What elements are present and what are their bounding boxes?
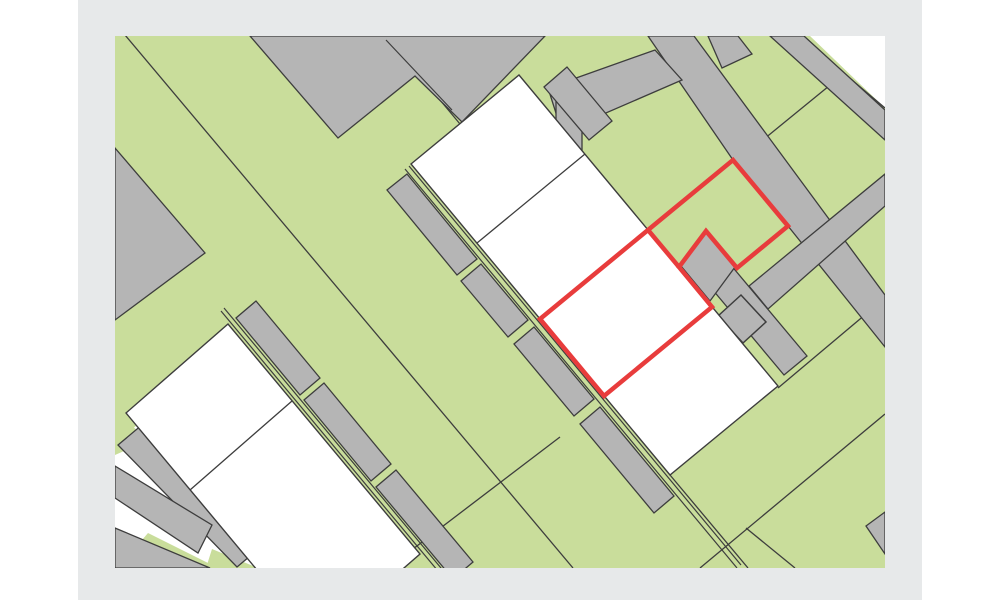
cadastral-map-canvas[interactable] — [115, 36, 885, 568]
map-viewer — [0, 0, 1000, 600]
